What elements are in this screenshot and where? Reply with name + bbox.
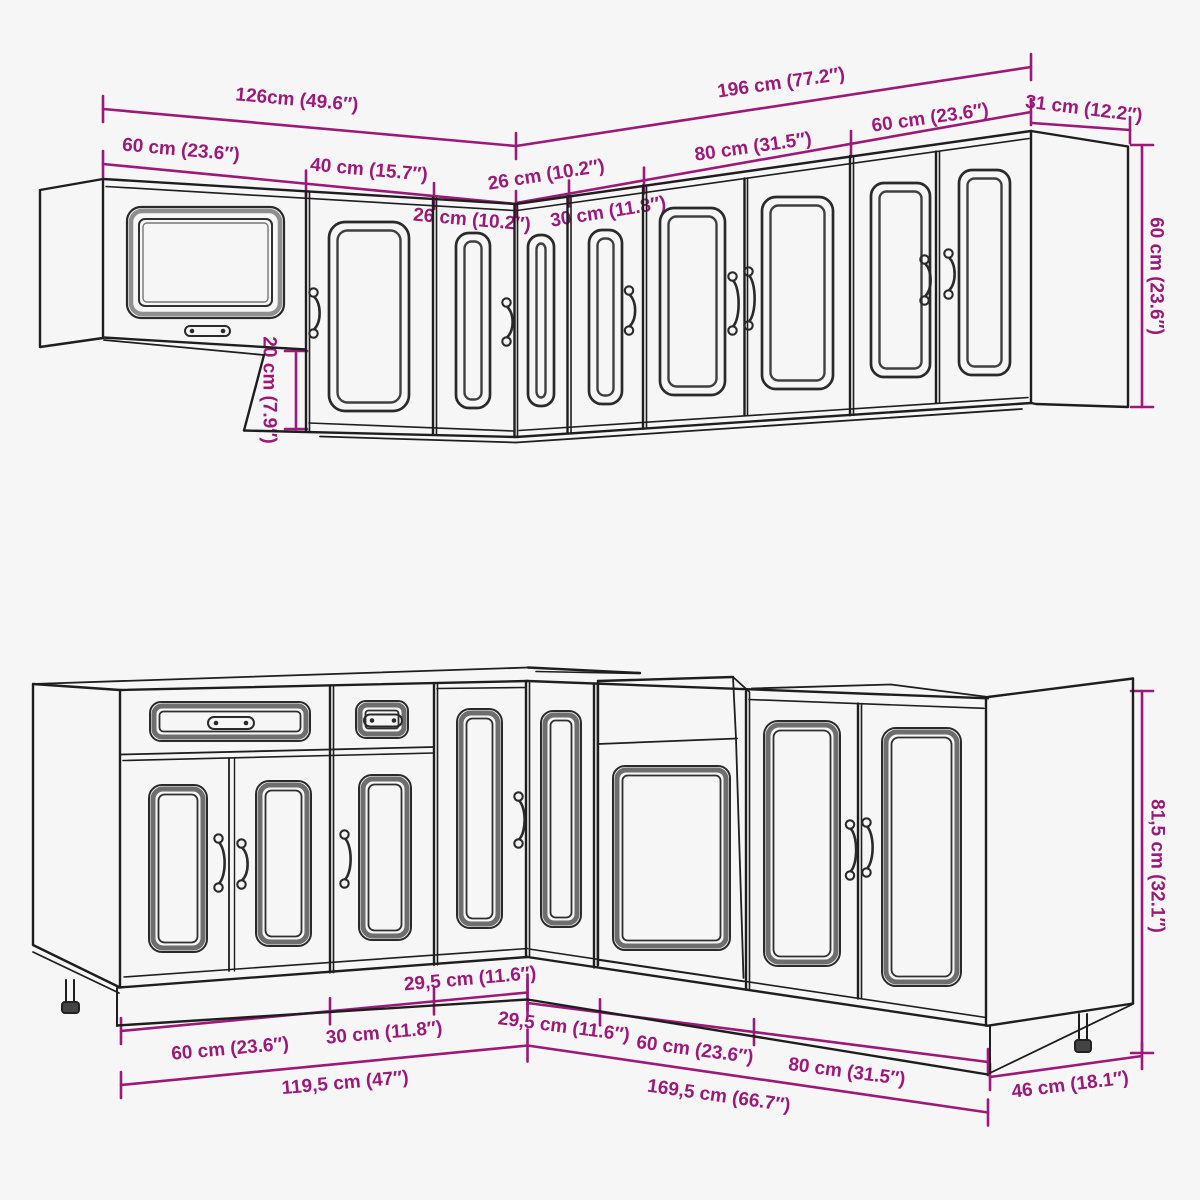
svg-text:20 cm (7.9″): 20 cm (7.9″) xyxy=(258,336,279,443)
svg-text:81,5 cm (32.1″): 81,5 cm (32.1″) xyxy=(1146,799,1167,933)
svg-text:60 cm (23.6″): 60 cm (23.6″) xyxy=(1145,217,1166,335)
